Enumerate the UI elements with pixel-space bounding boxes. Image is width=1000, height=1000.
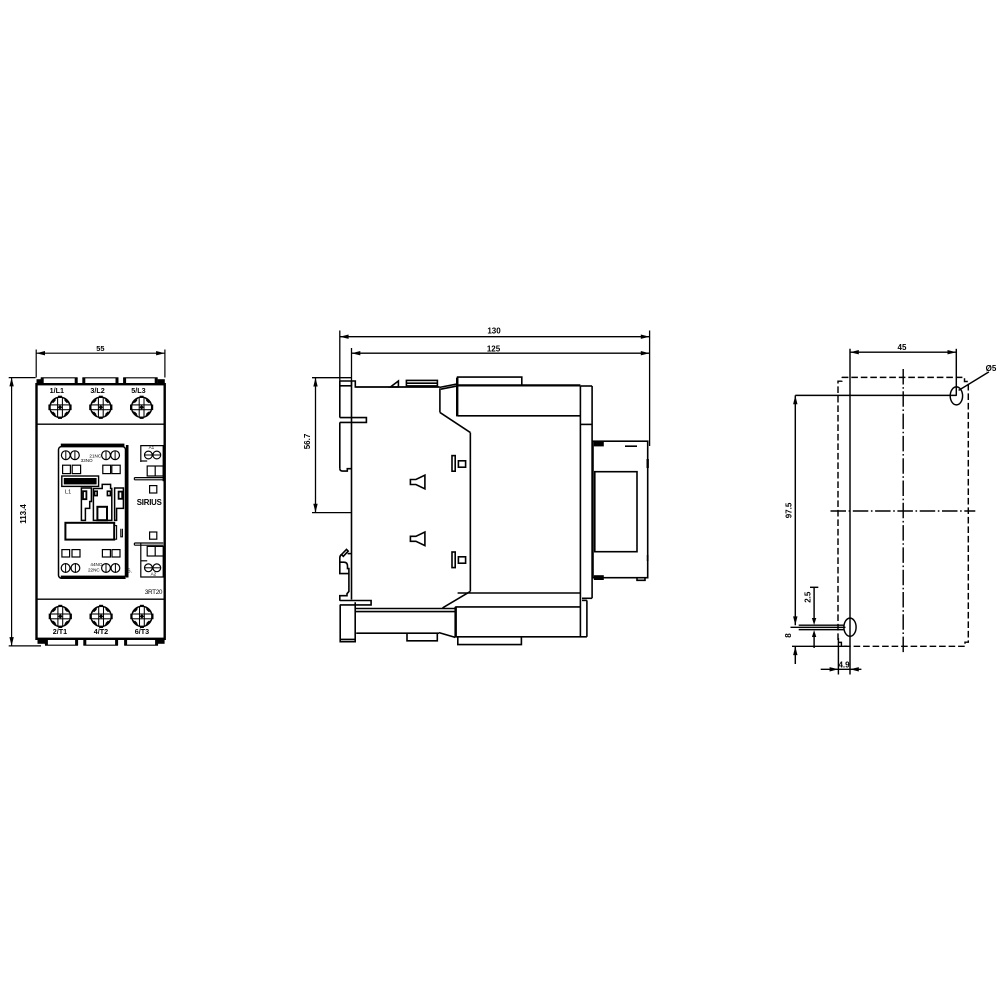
svg-text:97.5: 97.5	[785, 502, 794, 518]
svg-text:2/T1: 2/T1	[53, 627, 67, 636]
svg-text:22NC: 22NC	[88, 568, 100, 573]
svg-text:Ø5: Ø5	[986, 364, 997, 373]
svg-text:130: 130	[487, 327, 501, 336]
svg-text:113.4: 113.4	[19, 504, 28, 524]
svg-text:SIRIUS: SIRIUS	[137, 498, 162, 507]
svg-text:3RT20: 3RT20	[145, 589, 163, 596]
svg-text:A1: A1	[149, 445, 155, 450]
svg-text:55: 55	[96, 344, 104, 353]
svg-text:56.7: 56.7	[303, 433, 312, 449]
svg-text:5/L3: 5/L3	[131, 386, 145, 395]
svg-text:44NO: 44NO	[90, 562, 102, 567]
svg-text:6/T3: 6/T3	[135, 627, 149, 636]
svg-text:1/L1: 1/L1	[50, 386, 64, 395]
svg-text:4.9: 4.9	[838, 661, 850, 670]
svg-text:8: 8	[784, 633, 793, 638]
svg-text:125: 125	[487, 345, 501, 354]
svg-text:L1: L1	[65, 490, 71, 496]
svg-text:33NO: 33NO	[81, 458, 93, 463]
svg-text:6.: 6.	[128, 568, 132, 574]
svg-text:SIEMENS: SIEMENS	[68, 480, 92, 486]
svg-text:45: 45	[898, 343, 907, 352]
svg-text:3/L2: 3/L2	[90, 386, 104, 395]
svg-text:4/T2: 4/T2	[94, 627, 108, 636]
svg-text:2.5: 2.5	[803, 591, 812, 603]
svg-text:A2: A2	[151, 572, 157, 577]
